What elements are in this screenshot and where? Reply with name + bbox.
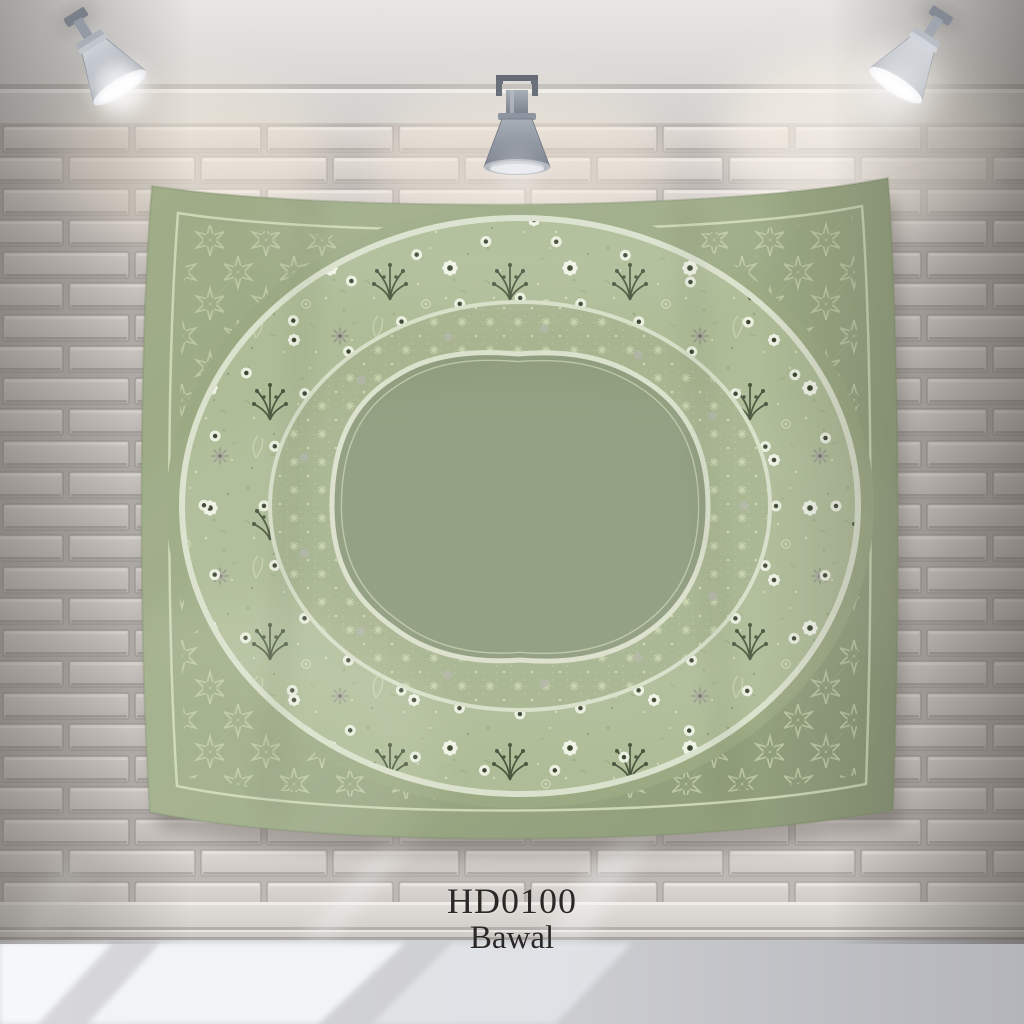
product-code: HD0100 <box>0 882 1024 921</box>
product-showcase: HD0100 Bawal <box>0 0 1024 1024</box>
scene-canvas <box>0 0 1024 1024</box>
scarf <box>40 150 940 900</box>
product-label: HD0100 Bawal <box>0 882 1024 957</box>
product-name: Bawal <box>0 921 1024 957</box>
